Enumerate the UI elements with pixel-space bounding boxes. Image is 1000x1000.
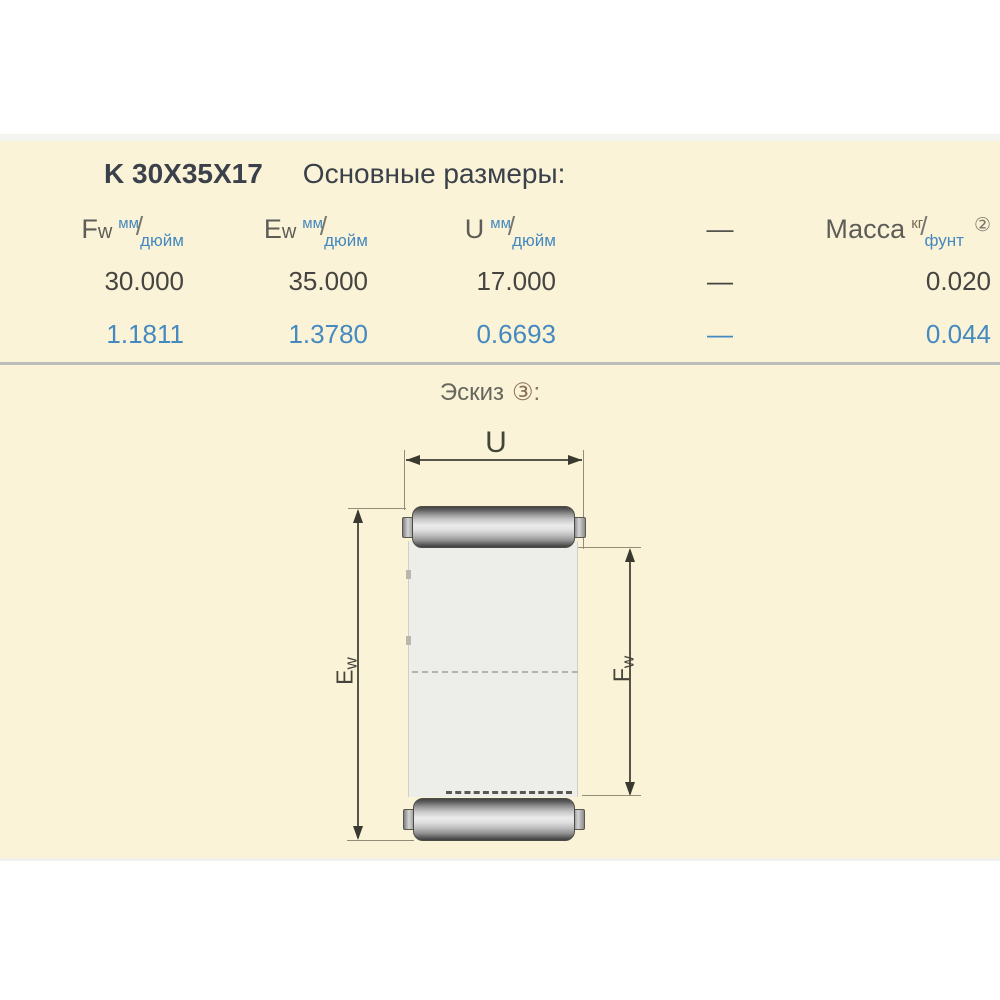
sketch-heading-text: Эскиз [440,379,504,406]
value-mass-lb: 0.044 [780,315,991,353]
value-dash-inch: — [650,315,790,353]
col-header-empty: — [650,207,790,251]
table-heading: Основные размеры: [303,158,566,189]
top-divider [0,134,1000,141]
extension-line-left [404,450,405,510]
ew-arrow-down-icon [353,826,363,840]
mass-label: Масса [825,214,905,244]
value-fw-mm: 30.000 [0,262,184,300]
ew-label: E [264,214,282,244]
value-u-mm: 17.000 [390,262,556,300]
fw-label-main: F [609,668,635,682]
center-axis-line [412,671,578,673]
value-ew-inch: 1.3780 [200,315,368,353]
sketch-footnote-ref[interactable]: ③: [512,379,540,406]
u-unit-inch: дюйм [512,231,556,250]
bottom-divider [0,858,1000,861]
hidden-edge-line [446,791,572,794]
dim-label-ew: Ew [332,657,359,685]
cage-notch [406,636,411,645]
needle-roller-top [412,506,575,548]
dim-label-fw: Fw [609,656,636,682]
u-arrow-right-icon [568,455,582,465]
dim-label-u: U [464,426,528,460]
ew-unit-inch: дюйм [324,231,368,250]
ew-tick-bottom [347,840,414,841]
section-divider [0,362,1000,365]
value-ew-mm: 35.000 [200,262,368,300]
col-header-fw: Fwмм/дюйм [0,207,184,251]
fw-label: F [81,214,98,244]
needle-roller-bottom [413,798,575,841]
fw-label-sub: w [98,221,112,243]
ew-label-main: E [332,669,358,684]
fw-label-sub: w [619,656,638,668]
u-arrow-left-icon [406,455,420,465]
value-fw-inch: 1.1811 [0,315,184,353]
sketch-heading: Эскиз③: [0,376,980,410]
mass-unit-lb: фунт [924,231,963,250]
ew-label-sub: w [282,221,296,243]
col-header-ew: Ewмм/дюйм [200,207,368,251]
value-dash-mm: — [650,262,790,300]
cage-notch [406,570,411,579]
ew-label-sub: w [342,657,361,669]
col-header-mass: Массакг/фунт② [780,207,991,251]
fw-unit-inch: дюйм [140,231,184,250]
bearing-code: K 30X35X17 [104,158,263,189]
title-row: K 30X35X17Основные размеры: [104,156,565,192]
mass-footnote-ref[interactable]: ② [974,215,991,236]
col-header-u: Uмм/дюйм [390,207,556,251]
bearing-cage [408,541,578,797]
fw-arrow-up-icon [625,548,635,562]
fw-arrow-down-icon [625,782,635,796]
ew-arrow-up-icon [353,509,363,523]
value-u-inch: 0.6693 [390,315,556,353]
value-mass-kg: 0.020 [780,262,991,300]
catalog-page: K 30X35X17Основные размеры: Fwмм/дюйм Ew… [0,0,1000,1000]
u-label: U [465,214,485,244]
